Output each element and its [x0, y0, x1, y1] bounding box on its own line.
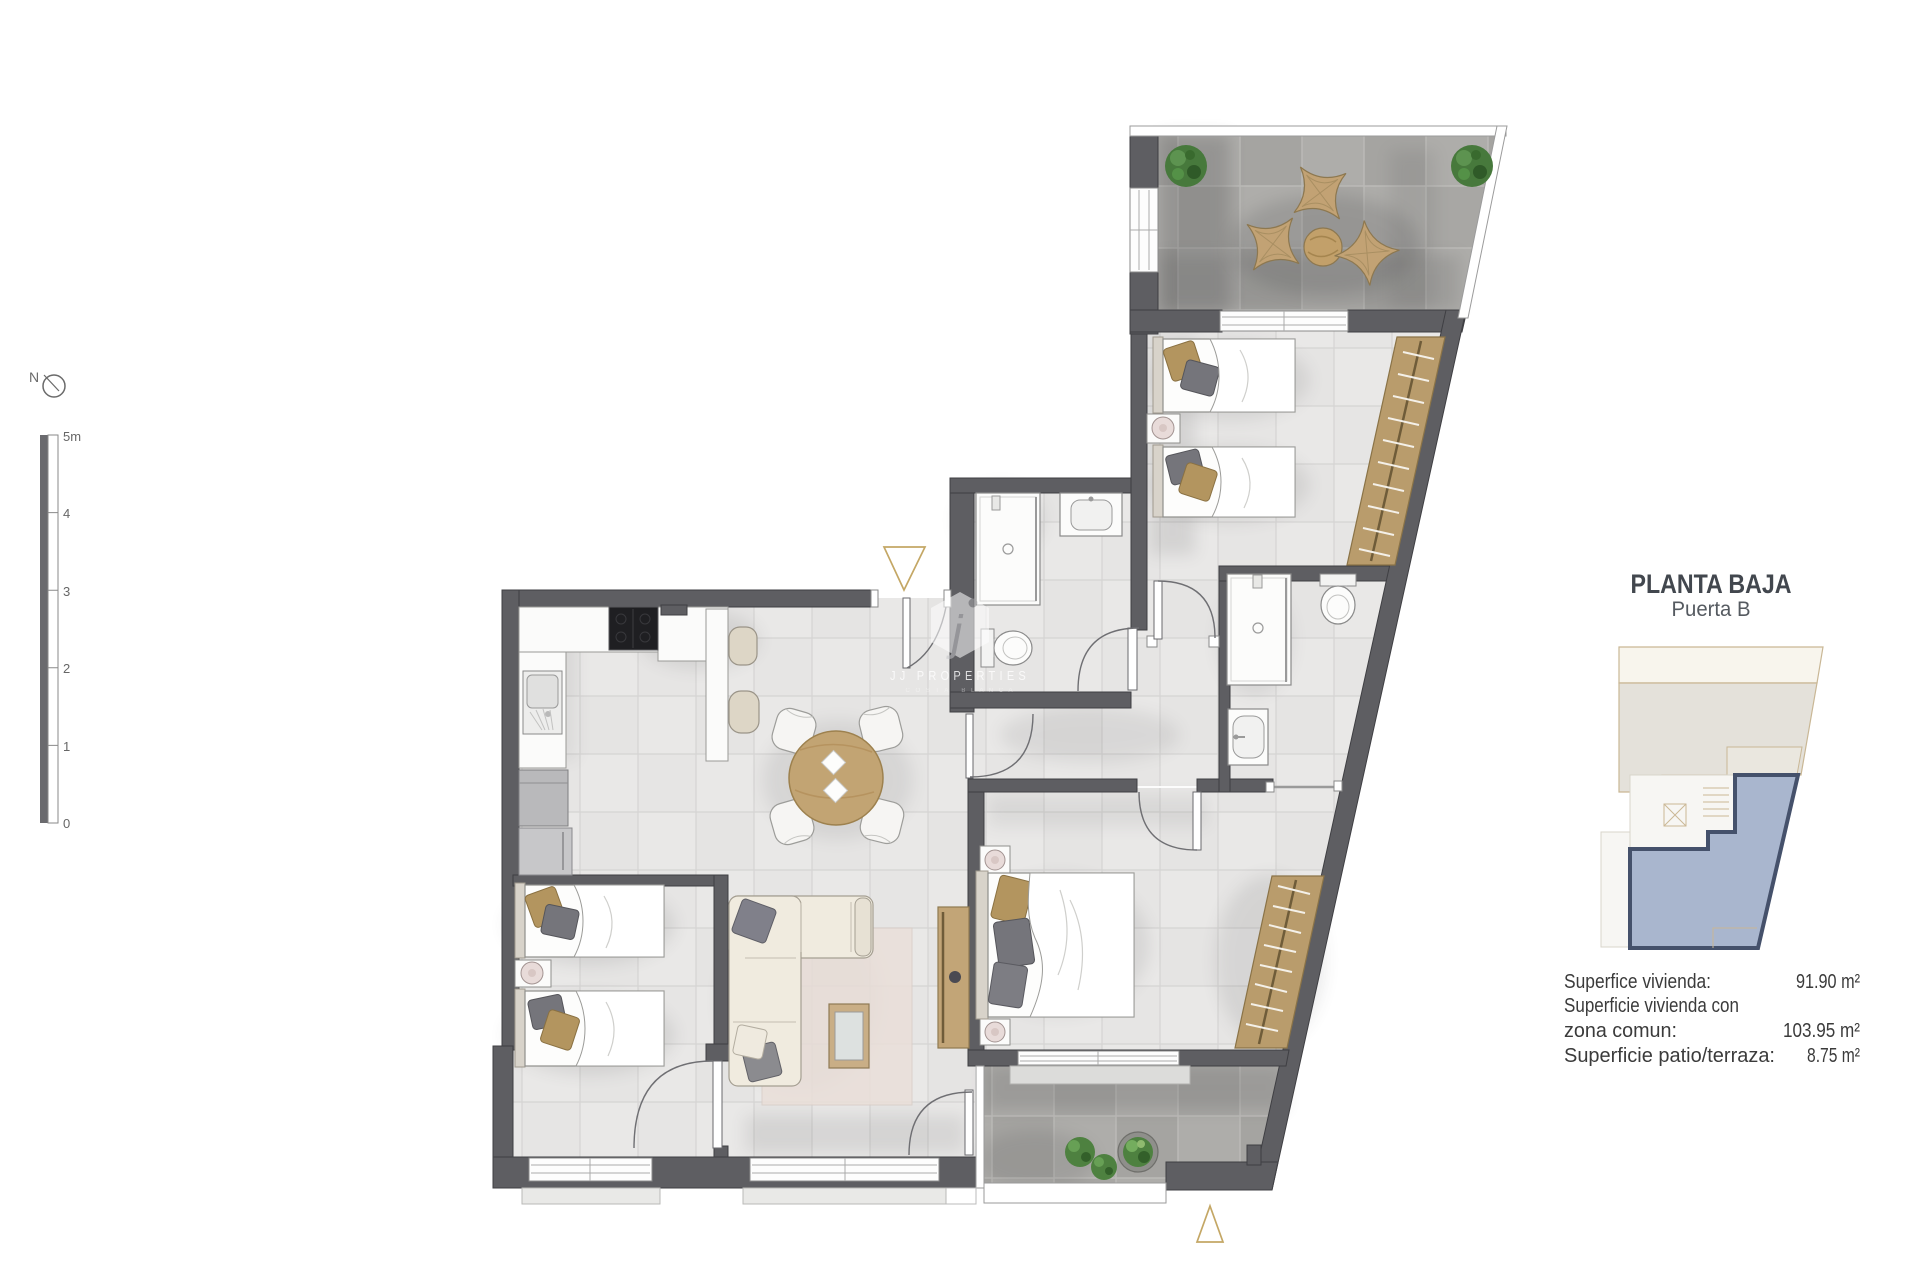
svg-text:Superficie patio/terraza:: Superficie patio/terraza:: [1564, 1045, 1775, 1067]
svg-text:3: 3: [63, 584, 70, 599]
svg-text:2: 2: [63, 661, 70, 676]
svg-text:4: 4: [63, 506, 70, 521]
svg-text:JJ PROPERTIES: JJ PROPERTIES: [890, 668, 1030, 683]
svg-text:91.90 m²: 91.90 m²: [1796, 971, 1860, 993]
svg-text:8.75 m²: 8.75 m²: [1807, 1045, 1860, 1067]
svg-text:N: N: [29, 369, 39, 385]
svg-text:0: 0: [63, 816, 70, 831]
svg-text:1: 1: [63, 739, 70, 754]
svg-text:PLANTA BAJA: PLANTA BAJA: [1631, 569, 1792, 599]
svg-text:zona comun:: zona comun:: [1564, 1020, 1677, 1042]
svg-text:C O S T A B L A N C A: C O S T A B L A N C A: [906, 688, 1015, 694]
svg-text:Superficie vivienda con: Superficie vivienda con: [1564, 995, 1739, 1017]
svg-text:Puerta B: Puerta B: [1672, 598, 1751, 621]
svg-text:5m: 5m: [63, 429, 81, 444]
svg-text:Superfice vivienda:: Superfice vivienda:: [1564, 971, 1711, 993]
svg-text:103.95 m²: 103.95 m²: [1783, 1020, 1860, 1042]
